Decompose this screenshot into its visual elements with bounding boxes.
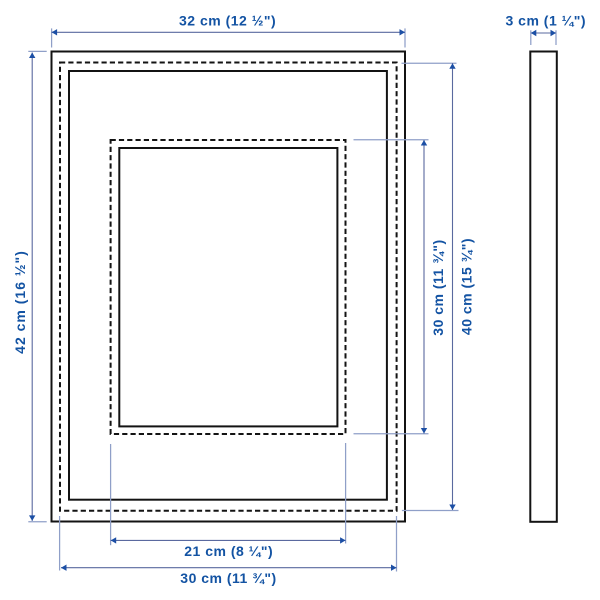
svg-text:32 cm (12 ½"): 32 cm (12 ½") xyxy=(179,12,276,28)
svg-text:30 cm (11 ¾"): 30 cm (11 ¾") xyxy=(430,239,446,335)
svg-text:42 cm (16 ½"): 42 cm (16 ½") xyxy=(12,250,28,354)
svg-text:30 cm (11 ¾"): 30 cm (11 ¾") xyxy=(180,570,276,586)
svg-text:40 cm (15 ¾"): 40 cm (15 ¾") xyxy=(459,238,475,335)
svg-text:3 cm (1 ¼"): 3 cm (1 ¼") xyxy=(505,13,586,29)
svg-text:21 cm (8 ¼"): 21 cm (8 ¼") xyxy=(184,543,273,559)
